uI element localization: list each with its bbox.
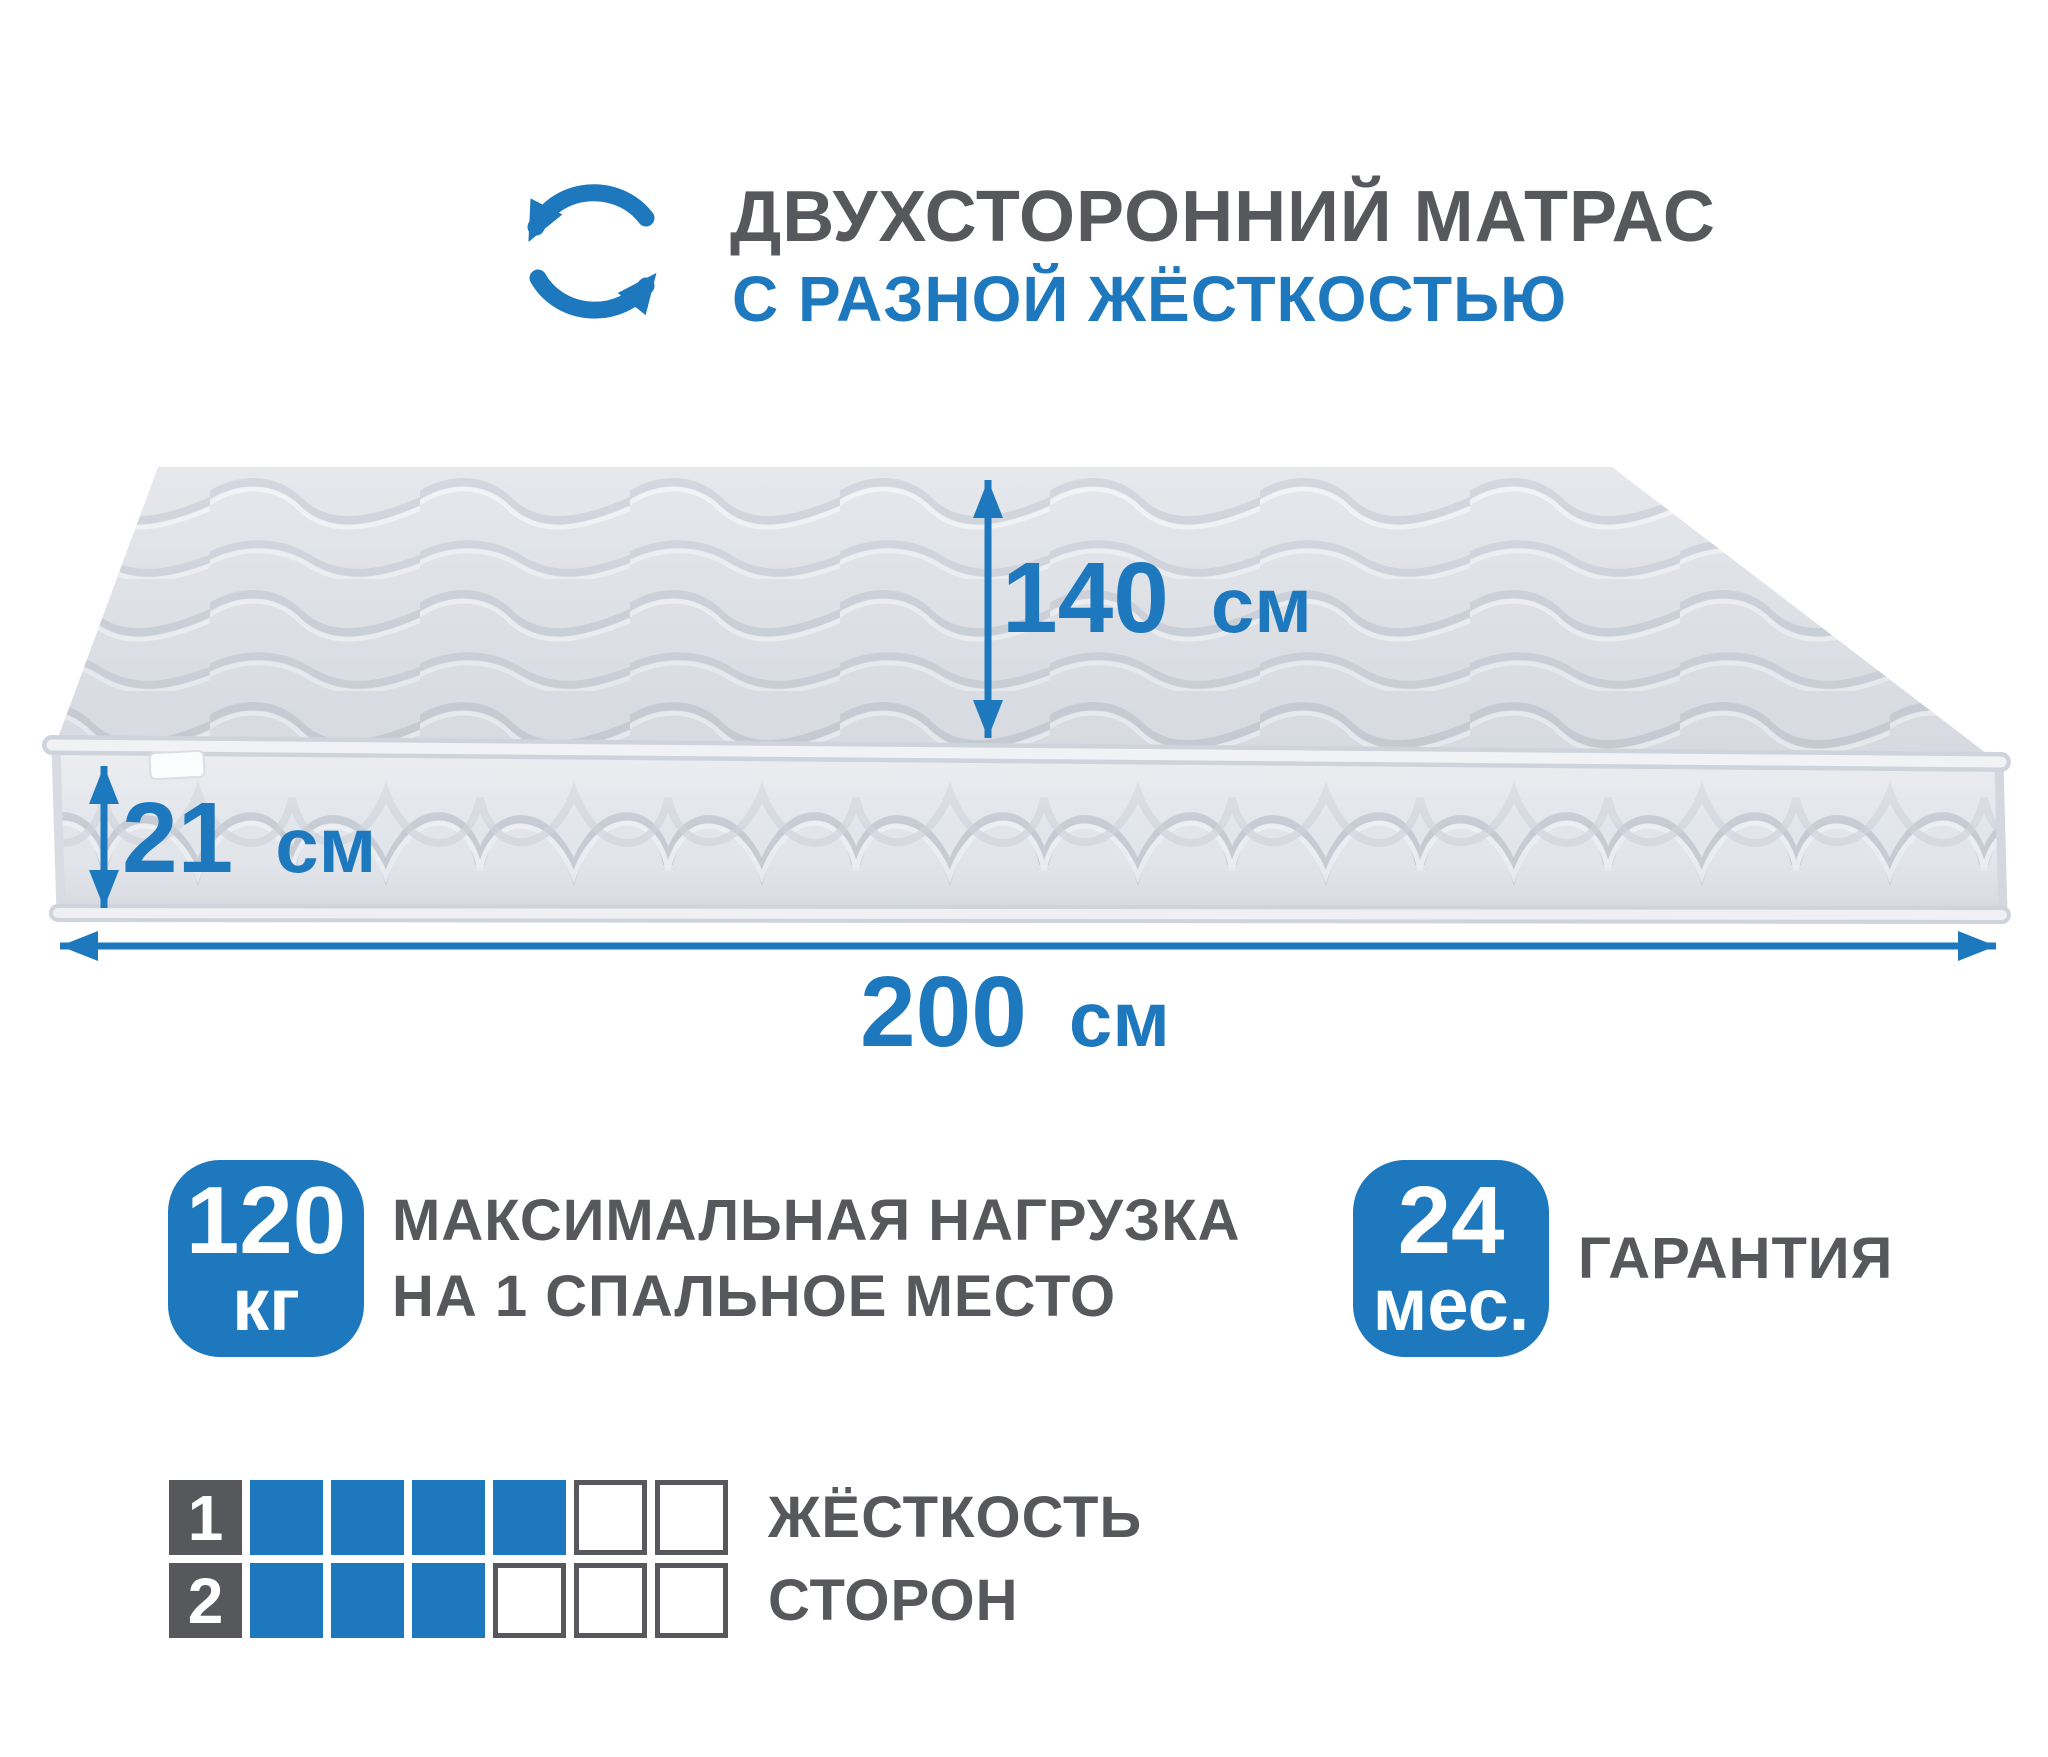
warranty-badge: 24 мес. [1353, 1160, 1549, 1357]
firmness-cells [242, 1480, 728, 1555]
mattress-tag [149, 751, 204, 780]
firmness-cell-empty [655, 1480, 728, 1555]
firmness-cell-empty [574, 1480, 647, 1555]
width-value: 140 [1002, 548, 1169, 648]
firmness-cell-filled [250, 1563, 323, 1638]
firmness-cell-filled [412, 1480, 485, 1555]
thickness-value: 21 [122, 788, 233, 888]
firmness-label-line1: ЖЁСТКОСТЬ [768, 1480, 1142, 1555]
firmness-cell-filled [493, 1480, 566, 1555]
mattress-infographic: ДВУХСТОРОННИЙ МАТРАС С РАЗНОЙ ЖЁСТКОСТЬЮ… [0, 0, 2048, 1757]
max-load-caption-line1: МАКСИМАЛЬНАЯ НАГРУЗКА [392, 1183, 1241, 1259]
length-unit: см [1069, 980, 1170, 1058]
firmness-cell-filled [412, 1563, 485, 1638]
thickness-dimension-label: 21 см [122, 788, 376, 888]
firmness-cell-filled [331, 1480, 404, 1555]
firmness-label-line2: СТОРОН [768, 1563, 1018, 1638]
firmness-cells [242, 1563, 728, 1638]
page-subtitle: С РАЗНОЙ ЖЁСТКОСТЬЮ [732, 262, 1567, 336]
rotate-arrows-icon [513, 178, 675, 330]
warranty-caption: ГАРАНТИЯ [1578, 1160, 1893, 1357]
firmness-row-side1: 1 [169, 1480, 728, 1555]
length-value: 200 [860, 962, 1027, 1062]
firmness-cell-empty [493, 1563, 566, 1638]
firmness-cell-empty [655, 1563, 728, 1638]
max-load-badge: 120 кг [168, 1160, 364, 1357]
warranty-value: 24 [1398, 1177, 1505, 1265]
max-load-caption-line2: НА 1 СПАЛЬНОЕ МЕСТО [392, 1259, 1241, 1335]
width-dimension-label: 140 см [1002, 548, 1312, 648]
warranty-unit: мес. [1373, 1270, 1530, 1340]
width-unit: см [1211, 566, 1312, 644]
firmness-cell-empty [574, 1563, 647, 1638]
max-load-caption: МАКСИМАЛЬНАЯ НАГРУЗКА НА 1 СПАЛЬНОЕ МЕСТ… [392, 1160, 1241, 1357]
firmness-side-number: 1 [169, 1480, 242, 1555]
page-title: ДВУХСТОРОННИЙ МАТРАС [730, 176, 1716, 258]
firmness-cell-filled [250, 1480, 323, 1555]
firmness-cell-filled [331, 1563, 404, 1638]
thickness-unit: см [275, 806, 376, 884]
length-dimension-label: 200 см [860, 962, 1170, 1062]
max-load-value: 120 [186, 1177, 346, 1265]
firmness-side-number: 2 [169, 1563, 242, 1638]
max-load-unit: кг [232, 1270, 300, 1340]
firmness-row-side2: 2 [169, 1563, 728, 1638]
warranty-caption-text: ГАРАНТИЯ [1578, 1221, 1893, 1297]
